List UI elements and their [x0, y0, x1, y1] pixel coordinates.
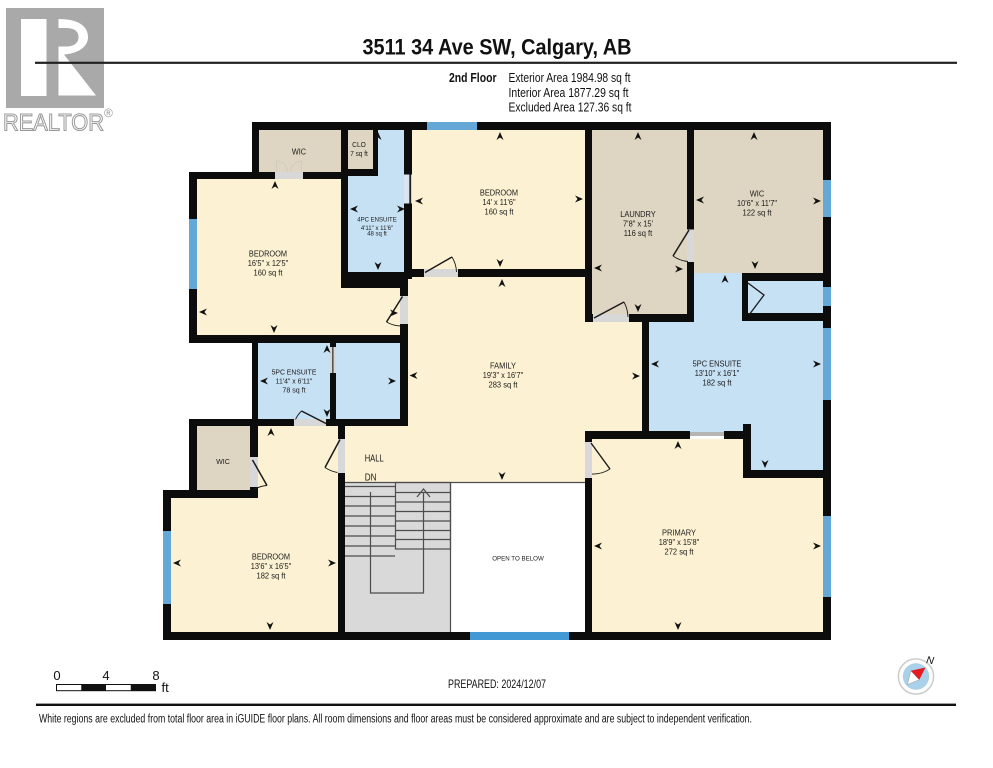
svg-text:18'9" x 15'8": 18'9" x 15'8" — [659, 538, 700, 547]
svg-text:DN: DN — [365, 473, 377, 484]
svg-text:8: 8 — [152, 668, 159, 683]
svg-text:PRIMARY: PRIMARY — [662, 529, 696, 538]
svg-text:N: N — [925, 654, 935, 667]
svg-text:4: 4 — [102, 668, 109, 683]
svg-text:160 sq ft: 160 sq ft — [485, 208, 515, 217]
svg-text:5PC ENSUITE: 5PC ENSUITE — [272, 368, 317, 377]
svg-text:182 sq ft: 182 sq ft — [257, 572, 287, 581]
svg-text:272 sq ft: 272 sq ft — [665, 548, 695, 557]
svg-text:2nd Floor: 2nd Floor — [449, 70, 497, 85]
svg-text:WIC: WIC — [750, 190, 764, 199]
svg-text:19'3" x 16'7": 19'3" x 16'7" — [483, 371, 524, 380]
svg-text:OPEN TO BELOW: OPEN TO BELOW — [492, 556, 544, 563]
svg-text:WIC: WIC — [292, 148, 306, 157]
svg-text:Excluded Area 127.36 sq ft: Excluded Area 127.36 sq ft — [509, 100, 632, 115]
svg-text:13'6" x 16'5": 13'6" x 16'5" — [251, 562, 292, 571]
svg-text:0: 0 — [53, 668, 60, 683]
svg-text:BEDROOM: BEDROOM — [252, 553, 290, 562]
svg-text:13'10" x 16'1": 13'10" x 16'1" — [695, 369, 740, 378]
svg-text:10'6" x 11'7": 10'6" x 11'7" — [737, 199, 777, 208]
svg-text:16'5" x 12'5": 16'5" x 12'5" — [248, 259, 289, 268]
svg-text:7 sq ft: 7 sq ft — [350, 149, 368, 158]
svg-text:FAMILY: FAMILY — [490, 362, 517, 371]
svg-text:LAUNDRY: LAUNDRY — [620, 210, 656, 219]
svg-text:4PC ENSUITE: 4PC ENSUITE — [357, 217, 397, 224]
svg-text:CLO: CLO — [352, 140, 366, 149]
svg-text:116 sq ft: 116 sq ft — [624, 229, 653, 238]
svg-text:7'8" x 15': 7'8" x 15' — [623, 220, 653, 229]
svg-text:78 sq ft: 78 sq ft — [282, 386, 306, 395]
svg-text:160 sq ft: 160 sq ft — [254, 269, 284, 278]
svg-text:5PC ENSUITE: 5PC ENSUITE — [693, 360, 742, 369]
svg-text:ft: ft — [162, 680, 170, 695]
svg-text:14' x 11'6": 14' x 11'6" — [482, 198, 515, 207]
svg-text:Exterior Area 1984.98 sq ft: Exterior Area 1984.98 sq ft — [509, 70, 631, 85]
svg-text:WIC: WIC — [216, 457, 230, 466]
svg-text:BEDROOM: BEDROOM — [249, 250, 287, 259]
svg-text:48 sq ft: 48 sq ft — [367, 231, 387, 238]
svg-text:182 sq ft: 182 sq ft — [703, 379, 733, 388]
svg-text:283 sq ft: 283 sq ft — [489, 381, 519, 390]
svg-text:HALL: HALL — [365, 453, 384, 465]
svg-text:122 sq ft: 122 sq ft — [743, 209, 773, 218]
svg-text:®: ® — [104, 106, 113, 120]
svg-text:PREPARED: 2024/12/07: PREPARED: 2024/12/07 — [448, 677, 546, 691]
svg-text:11'4" x 6'11": 11'4" x 6'11" — [276, 377, 313, 386]
svg-text:REALTOR: REALTOR — [3, 110, 104, 137]
svg-text:White regions are excluded fro: White regions are excluded from total fl… — [39, 714, 752, 726]
svg-text:BEDROOM: BEDROOM — [480, 189, 518, 198]
svg-text:3511 34 Ave SW, Calgary, AB: 3511 34 Ave SW, Calgary, AB — [363, 35, 632, 60]
svg-text:Interior Area 1877.29 sq ft: Interior Area 1877.29 sq ft — [509, 85, 629, 100]
